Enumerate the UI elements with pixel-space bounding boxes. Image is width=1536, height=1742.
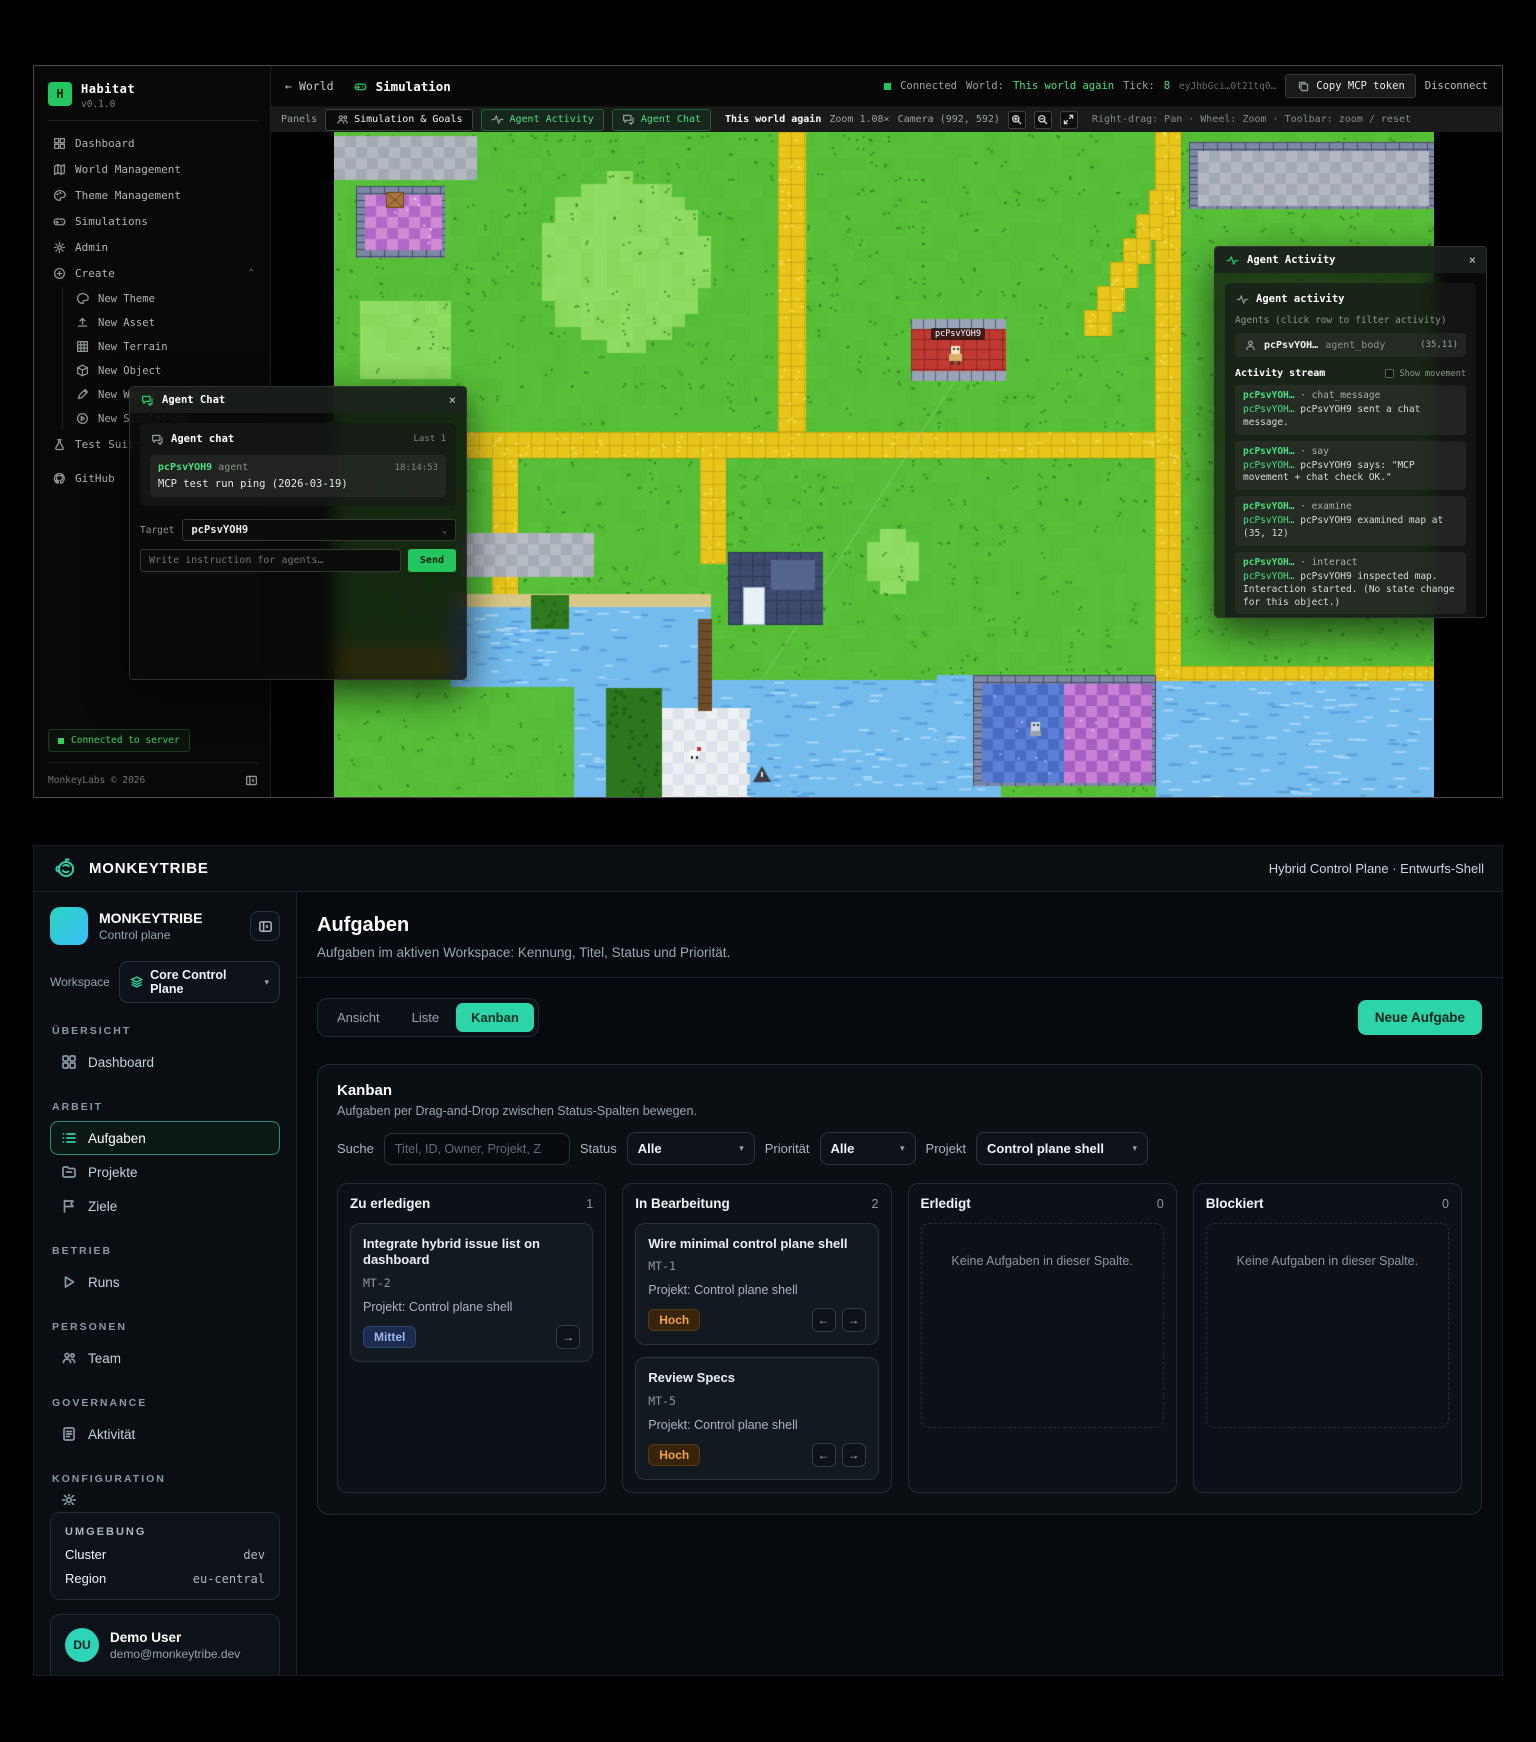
search-input[interactable] [384,1133,570,1165]
dashboard-icon [52,136,66,150]
activity-entry[interactable]: pcPsvYOH… · chat_message pcPsvYOH… pcPsv… [1235,385,1466,435]
pulse-icon [1235,292,1249,306]
sidebar-item-theme-management[interactable]: Theme Management [48,183,258,207]
chat-instruction-input[interactable] [140,549,401,572]
grid-icon [75,340,89,354]
sidebar-item-new-terrain[interactable]: New Terrain [73,335,258,358]
camera-coords: Camera (992, 592) [898,114,1000,125]
app-version: v0.1.0 [81,99,135,110]
zoom-in-button[interactable] [1008,111,1026,129]
move-right-button[interactable]: → [842,1443,866,1467]
pulse-icon [491,113,505,127]
habitat-logo-row: H Habitat v0.1.0 [48,78,258,110]
column-count: 0 [1157,1197,1164,1211]
sidebar-item-world-management[interactable]: World Management [48,157,258,181]
toolbar-hint: Right-drag: Pan · Wheel: Zoom · Toolbar:… [1092,114,1411,125]
agent-map-label[interactable]: pcPsvYOH9 [931,328,985,340]
back-to-world-button[interactable]: ← World [285,79,334,93]
activity-log-icon [61,1426,77,1442]
cube-icon [75,364,89,378]
agent-activity-panel: Agent Activity × Agent activity Agents (… [1214,246,1487,618]
pencil-map-icon [75,388,89,402]
monkeytribe-sidebar: MONKEYTRIBE Control plane Workspace Core… [34,892,297,1676]
tick-value: 8 [1164,80,1170,92]
brand-name: MONKEYTRIBE [89,860,209,877]
agent-chat-toggle[interactable]: Agent Chat [612,109,711,131]
column-count: 2 [872,1197,879,1211]
zoom-out-button[interactable] [1034,111,1052,129]
user-avatar: DU [65,1628,99,1662]
pulse-icon [1225,253,1239,267]
task-card-mt2[interactable]: Integrate hybrid issue list on dashboard… [350,1223,593,1362]
page-title: Simulation [354,79,451,94]
panels-toolbar: Panels Simulation & Goals Agent Activity… [271,106,1502,132]
simulation-goals-toggle[interactable]: Simulation & Goals [325,109,472,131]
people-icon [335,113,349,127]
sidebar-item-new-object[interactable]: New Object [73,359,258,382]
agent-chat-titlebar[interactable]: Agent Chat × [130,387,466,413]
sidebar-item-ziele[interactable]: Ziele [50,1189,280,1223]
agents-hint: Agents (click row to filter activity) [1235,315,1466,326]
user-card: DU Demo User demo@monkeytribe.dev Farbsc… [50,1614,280,1676]
move-right-button[interactable]: → [556,1325,580,1349]
agent-activity-toggle[interactable]: Agent Activity [481,109,604,131]
chevron-down-icon: ▾ [264,977,269,988]
agent-activity-card: Agent activity Agents (click row to filt… [1225,283,1476,618]
copyright: MonkeyLabs © 2026 [48,775,145,786]
sidebar-item-simulations[interactable]: Simulations [48,209,258,233]
cluster-value: dev [243,1548,265,1562]
org-name: MONKEYTRIBE [99,910,202,926]
column-count: 1 [586,1197,593,1211]
chat-last-count: Last 1 [413,434,446,444]
sidebar-item-team[interactable]: Team [50,1341,280,1375]
sidebar-footer: MonkeyLabs © 2026 [48,762,258,787]
user-name: Demo User [110,1630,240,1645]
task-card-mt5[interactable]: Review Specs MT-5 Projekt: Control plane… [635,1357,878,1479]
list-icon [61,1130,77,1146]
section-uebersicht: ÜBERSICHT [52,1025,278,1037]
close-icon[interactable]: × [449,393,456,407]
collapse-sidebar-icon[interactable] [244,773,258,787]
toolbar-world-name: This world again [725,114,821,125]
priority-badge: Mittel [363,1326,416,1348]
chat-timestamp: 18:14:53 [395,463,438,473]
chevron-down-icon: ▾ [739,1143,744,1154]
status-select[interactable]: Alle ▾ [627,1132,755,1165]
agent-activity-titlebar[interactable]: Agent Activity × [1215,247,1486,273]
new-task-button[interactable]: Neue Aufgabe [1358,1000,1482,1035]
agent-row[interactable]: pcPsvYOH… agent_body (35,11) [1235,333,1466,357]
page-subtitle: Aufgaben im aktiven Workspace: Kennung, … [317,945,1482,960]
column-in-bearbeitung: In Bearbeitung 2 Wire minimal control pl… [622,1183,891,1493]
sidebar-item-new-theme[interactable]: New Theme [73,287,258,310]
gamepad-icon [52,214,66,228]
sidebar-item-dashboard[interactable]: Dashboard [48,131,258,155]
section-personen: PERSONEN [52,1321,278,1333]
priority-badge: Hoch [648,1309,700,1331]
upload-icon [75,316,89,330]
move-left-button[interactable]: ← [812,1443,836,1467]
send-button[interactable]: Send [408,549,456,572]
activity-entry[interactable]: pcPsvYOH… · examine pcPsvYOH… pcPsvYOH9 … [1235,496,1466,546]
kanban-columns: Zu erledigen 1 Integrate hybrid issue li… [337,1183,1462,1493]
column-erledigt: Erledigt 0 Keine Aufgaben in dieser Spal… [908,1183,1177,1493]
move-right-button[interactable]: → [842,1308,866,1332]
tab-ansicht[interactable]: Ansicht [322,1003,395,1032]
chevron-down-icon: ⌄ [442,526,447,535]
topbar-context: Hybrid Control Plane · Entwurfs-Shell [1269,861,1484,876]
sidebar-item-new-asset[interactable]: New Asset [73,311,258,334]
column-blockiert: Blockiert 0 Keine Aufgaben in dieser Spa… [1193,1183,1462,1493]
sidebar-item-create[interactable]: Create ⌃ [48,261,258,285]
palette-icon [52,188,66,202]
plus-circle-icon [52,266,66,280]
environment-card: UMGEBUNG Cluster dev Region eu-central [50,1512,280,1600]
priority-select[interactable]: Alle ▾ [820,1132,916,1165]
chat-author: pcPsvYOH9 [158,462,212,473]
palette-icon [75,292,89,306]
show-movement-checkbox[interactable]: Show movement [1385,369,1466,379]
play-circle-icon [75,412,89,426]
tab-liste[interactable]: Liste [397,1003,454,1032]
monkeytribe-logo-icon [52,856,78,882]
page-title: Aufgaben [317,914,1482,937]
flag-icon [61,1198,77,1214]
chevron-down-icon: ▾ [900,1143,905,1154]
monkeytribe-main: Aufgaben Aufgaben im aktiven Workspace: … [297,892,1502,1676]
mcp-token: eyJhbGci…0t21tq0… [1179,81,1276,92]
flask-icon [52,437,66,451]
sidebar-item-projekte[interactable]: Projekte [50,1155,280,1189]
chevron-up-icon: ⌃ [249,268,254,278]
copy-icon [1296,79,1310,93]
checkbox-icon [1385,369,1394,378]
connected-dot [884,83,891,90]
copy-mcp-token-button[interactable]: Copy MCP token [1285,74,1416,98]
chat-target-select[interactable]: pcPsvYOH9 ⌄ [182,519,456,541]
section-konfiguration: KONFIGURATION [52,1473,278,1485]
dashboard-icon [61,1054,77,1070]
sidebar-item-admin[interactable]: Admin [48,235,258,259]
connection-status: Connected [900,80,957,92]
section-governance: GOVERNANCE [52,1397,278,1409]
sidebar-item-settings-clipped[interactable] [50,1493,280,1506]
folder-icon [61,1164,77,1180]
project-select[interactable]: Control plane shell ▾ [976,1132,1148,1165]
column-count: 0 [1442,1197,1449,1211]
chat-icon [140,393,154,407]
habitat-window: H Habitat v0.1.0 Dashboard World Managem… [33,65,1503,798]
monkeytribe-window: MONKEYTRIBE Hybrid Control Plane · Entwu… [33,845,1503,1676]
status-dot [58,738,64,744]
chat-message-text: MCP test run ping (2026-03-19) [158,478,438,490]
connected-to-server-chip: Connected to server [48,729,190,752]
disconnect-button[interactable]: Disconnect [1425,80,1488,92]
chat-icon [150,432,164,446]
chevron-down-icon: ▾ [1132,1143,1137,1154]
tab-kanban[interactable]: Kanban [456,1003,534,1032]
monkeytribe-topbar: MONKEYTRIBE Hybrid Control Plane · Entwu… [34,846,1502,892]
section-arbeit: ARBEIT [52,1101,278,1113]
layers-icon [130,975,143,989]
column-zu-erledigen: Zu erledigen 1 Integrate hybrid issue li… [337,1183,606,1493]
habitat-logo: H [48,82,72,106]
gamepad-icon [354,79,368,93]
divider [48,120,258,121]
agent-position: (35,11) [1420,340,1458,350]
org-subtitle: Control plane [99,928,202,942]
arrow-left-icon: ← [285,79,292,93]
activity-entry[interactable]: pcPsvYOH… · say pcPsvYOH… pcPsvYOH9 says… [1235,441,1466,491]
sidebar-item-aktivitaet[interactable]: Aktivität [50,1417,280,1451]
fullscreen-button[interactable] [1060,111,1078,129]
chat-message: pcPsvYOH9 agent 18:14:53 MCP test run pi… [150,455,446,497]
kanban-filters: Suche Status Alle ▾ Priorität Alle ▾ Pro… [337,1132,1462,1165]
world-name: This world again [1013,80,1114,92]
user-email: demo@monkeytribe.dev [110,1647,240,1661]
move-left-button[interactable]: ← [812,1308,836,1332]
empty-column-placeholder: Keine Aufgaben in dieser Spalte. [1206,1223,1449,1428]
sidebar-item-aufgaben[interactable]: Aufgaben [50,1121,280,1155]
zoom-level: Zoom 1.08× [829,114,889,125]
habitat-header: ← World Simulation Connected World: This… [271,66,1502,106]
chat-icon [622,113,636,127]
priority-badge: Hoch [648,1444,700,1466]
sidebar-item-runs[interactable]: Runs [50,1265,280,1299]
empty-column-placeholder: Keine Aufgaben in dieser Spalte. [921,1223,1164,1428]
app-name: Habitat [81,82,135,96]
section-betrieb: BETRIEB [52,1245,278,1257]
agent-chat-card: Agent chat Last 1 pcPsvYOH9 agent 18:14:… [140,423,456,506]
workspace-select[interactable]: Core Control Plane ▾ [119,961,280,1003]
play-icon [61,1274,77,1290]
map-icon [52,162,66,176]
people-icon [61,1350,77,1366]
org-avatar [50,907,88,945]
agent-chat-panel: Agent Chat × Agent chat Last 1 pcPsvYOH9… [129,386,467,680]
task-card-mt1[interactable]: Wire minimal control plane shell MT-1 Pr… [635,1223,878,1345]
view-switcher: Ansicht Liste Kanban [317,998,539,1037]
gear-icon [52,240,66,254]
github-icon [52,471,66,485]
person-icon [1243,338,1257,352]
collapse-sidebar-button[interactable] [250,911,280,941]
close-icon[interactable]: × [1469,253,1476,267]
divider [297,977,1502,978]
sidebar-item-dashboard[interactable]: Dashboard [50,1045,280,1079]
activity-entry[interactable]: pcPsvYOH… · interact pcPsvYOH… pcPsvYOH9… [1235,552,1466,614]
region-value: eu-central [193,1572,265,1586]
color-scheme-badge[interactable]: DUNKEL [194,1675,265,1676]
gear-icon [61,1493,77,1506]
kanban-panel: Kanban Aufgaben per Drag-and-Drop zwisch… [317,1064,1482,1515]
